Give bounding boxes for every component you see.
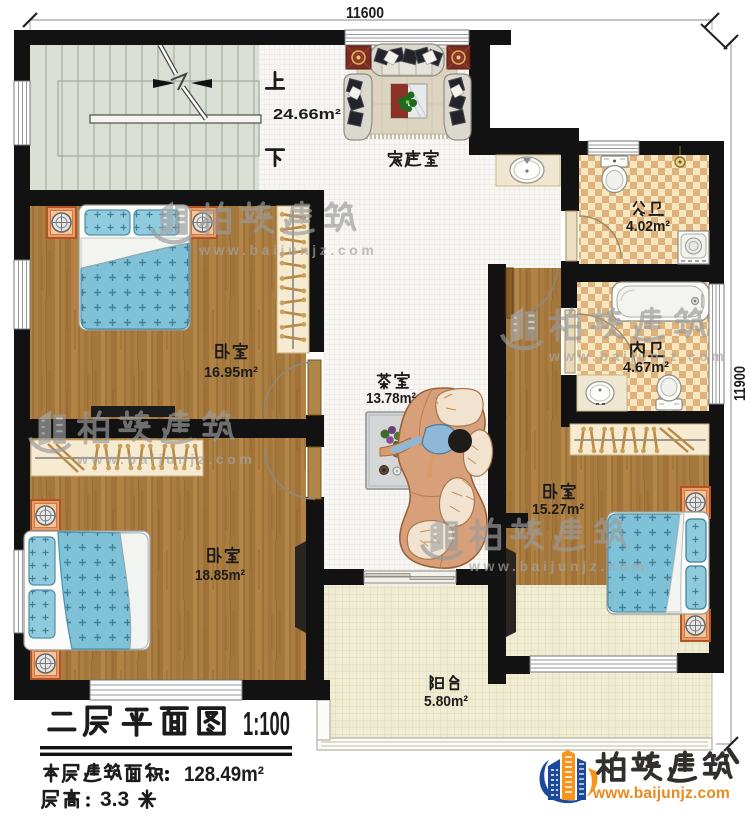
svg-text:www.baijunjz.com: www.baijunjz.com xyxy=(76,451,255,467)
svg-text:www.baijunjz.com: www.baijunjz.com xyxy=(198,242,377,258)
svg-text:www.baijunjz.com: www.baijunjz.com xyxy=(592,785,730,802)
svg-text:3.3: 3.3 xyxy=(100,788,129,811)
svg-text:4.02m²: 4.02m² xyxy=(626,218,670,235)
svg-text:13.78m²: 13.78m² xyxy=(366,390,416,407)
svg-text:5.80m²: 5.80m² xyxy=(424,693,468,710)
svg-text:128.49m²: 128.49m² xyxy=(184,763,264,786)
svg-text:16.95m²: 16.95m² xyxy=(204,364,258,381)
svg-text:www.baijunjz.com: www.baijunjz.com xyxy=(468,558,647,574)
svg-text:15.27m²: 15.27m² xyxy=(532,501,584,518)
svg-text:www.baijunjz.com: www.baijunjz.com xyxy=(548,348,727,364)
svg-text:24.66m²: 24.66m² xyxy=(273,107,341,123)
svg-text:18.85m²: 18.85m² xyxy=(195,567,245,584)
svg-text:11600: 11600 xyxy=(346,5,384,22)
svg-text:11900: 11900 xyxy=(732,366,749,401)
svg-text:1:100: 1:100 xyxy=(243,705,290,742)
